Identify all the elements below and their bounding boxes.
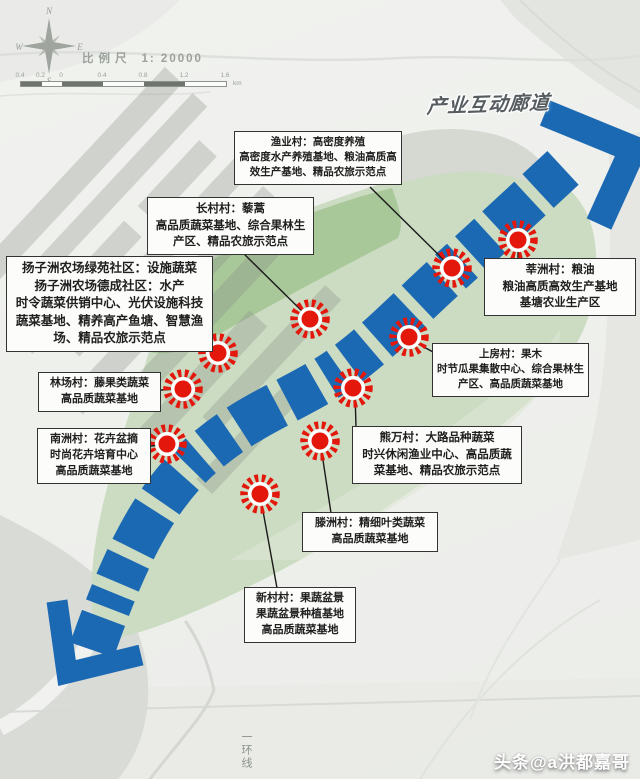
village-label-line: 长村村：藜蒿 (151, 201, 310, 218)
village-label-line: 南洲村：花卉盆摘 (41, 432, 147, 448)
village-label-line: 时令蔬菜供销中心、光伏设施科技 (10, 295, 209, 313)
village-label-line: 高密度水产养殖基地、粮油高质高 (238, 150, 398, 165)
village-label-shangfang: 上房村：果木 时节瓜果集散中心、综合果林生 产区、高品质蔬菜基地 (432, 343, 589, 397)
village-label-line: 时兴休闲渔业中心、高品质蔬 (356, 447, 518, 464)
scalebar-tick-label: 0 (59, 72, 63, 79)
village-label-line: 新村村：果蔬盆景 (248, 591, 352, 607)
village-label-line: 熊万村：大路品种蔬菜 (356, 430, 518, 447)
village-label-line: 果蔬盆景种植基地 (248, 607, 352, 623)
village-label-line: 高品质蔬菜基地 (41, 464, 147, 480)
scale-label: 比例尺 (82, 53, 132, 65)
ring-road-label: 一环线 (238, 731, 254, 770)
village-label-line: 高品质蔬菜基地 (248, 623, 352, 639)
village-label-nanzhou: 南洲村：花卉盆摘 时尚花卉培育中心 高品质蔬菜基地 (37, 428, 151, 484)
corridor-title: 产业互动廊道 (426, 86, 551, 119)
compass-star-main (22, 18, 76, 74)
village-label-line: 产区、精品农旅示范点 (151, 234, 310, 251)
village-label-line: 高品质蔬菜基地、综合果林生 (151, 218, 310, 235)
scalebar-tick-label: 1.6 (220, 72, 229, 79)
village-label-line: 高品质蔬菜基地 (306, 532, 434, 548)
village-label-line: 时尚花卉培育中心 (41, 448, 147, 464)
village-label-changcun: 长村村：藜蒿 高品质蔬菜基地、综合果林生 产区、精品农旅示范点 (147, 197, 314, 255)
map-canvas: 产业互动廊道 N E S W 比例尺1: 20000 0.4 0.2 0 0.4… (0, 0, 640, 779)
village-label-line: 上房村：果木 (436, 347, 585, 362)
scalebar-tick-label: 0.4 (97, 72, 106, 79)
village-label-line: 效生产基地、精品农旅示范点 (238, 165, 398, 180)
village-label-shenzhou: 莘洲村：粮油 粮油高质高效生产基地 基塘农业生产区 (484, 258, 636, 316)
scalebar: 0.4 0.2 0 0.4 0.8 1.2 1.6 km (20, 72, 225, 90)
village-label-linchang: 林场村：藤果类蔬菜 高品质蔬菜基地 (38, 372, 161, 412)
village-label-line: 高品质蔬菜基地 (42, 392, 157, 408)
scale-text: 比例尺1: 20000 (82, 50, 203, 66)
village-label-line: 扬子洲农场绿苑社区：设施蔬菜 (10, 260, 209, 278)
village-label-xincun: 新村村：果蔬盆景 果蔬盆景种植基地 高品质蔬菜基地 (244, 587, 356, 643)
scalebar-tick-label: 0.2 (36, 72, 45, 79)
village-label-xiongwan: 熊万村：大路品种蔬菜 时兴休闲渔业中心、高品质蔬 菜基地、精品农旅示范点 (352, 426, 522, 484)
village-label-line: 产区、高品质蔬菜基地 (436, 377, 585, 392)
village-label-line: 场、精品农旅示范点 (10, 330, 209, 348)
village-label-line: 林场村：藤果类蔬菜 (42, 376, 157, 392)
scale-ratio: 1: 20000 (142, 53, 203, 65)
village-label-yuye: 渔业村：高密度养殖 高密度水产养殖基地、粮油高质高 效生产基地、精品农旅示范点 (234, 131, 402, 185)
village-label-line: 基塘农业生产区 (488, 295, 632, 312)
scalebar-tick-label: 0.8 (138, 72, 147, 79)
scalebar-unit: km (233, 80, 242, 87)
village-label-line: 滕洲村：精细叶类蔬菜 (306, 516, 434, 532)
village-label-line: 渔业村：高密度养殖 (238, 135, 398, 150)
village-label-line: 扬子洲农场德成社区：水产 (10, 278, 209, 296)
footer-watermark: 头条@a洪都嘉哥 (494, 748, 630, 773)
village-label-line: 菜基地、精品农旅示范点 (356, 463, 518, 480)
compass-n-label: N (45, 6, 53, 16)
compass-w-label: W (15, 42, 24, 52)
village-label-yangzizhou: 扬子洲农场绿苑社区：设施蔬菜 扬子洲农场德成社区：水产 时令蔬菜供销中心、光伏设… (6, 256, 213, 352)
village-label-line: 蔬菜基地、精养高产鱼塘、智慧渔 (10, 313, 209, 331)
village-label-line: 时节瓜果集散中心、综合果林生 (436, 362, 585, 377)
village-label-line: 粮油高质高效生产基地 (488, 279, 632, 296)
scalebar-tick-label: 0.4 (15, 72, 24, 79)
scalebar-tick-label: 1.2 (179, 72, 188, 79)
scalebar-bar (20, 81, 227, 87)
village-label-tengzhou: 滕洲村：精细叶类蔬菜 高品质蔬菜基地 (302, 512, 438, 552)
village-label-line: 莘洲村：粮油 (488, 262, 632, 279)
